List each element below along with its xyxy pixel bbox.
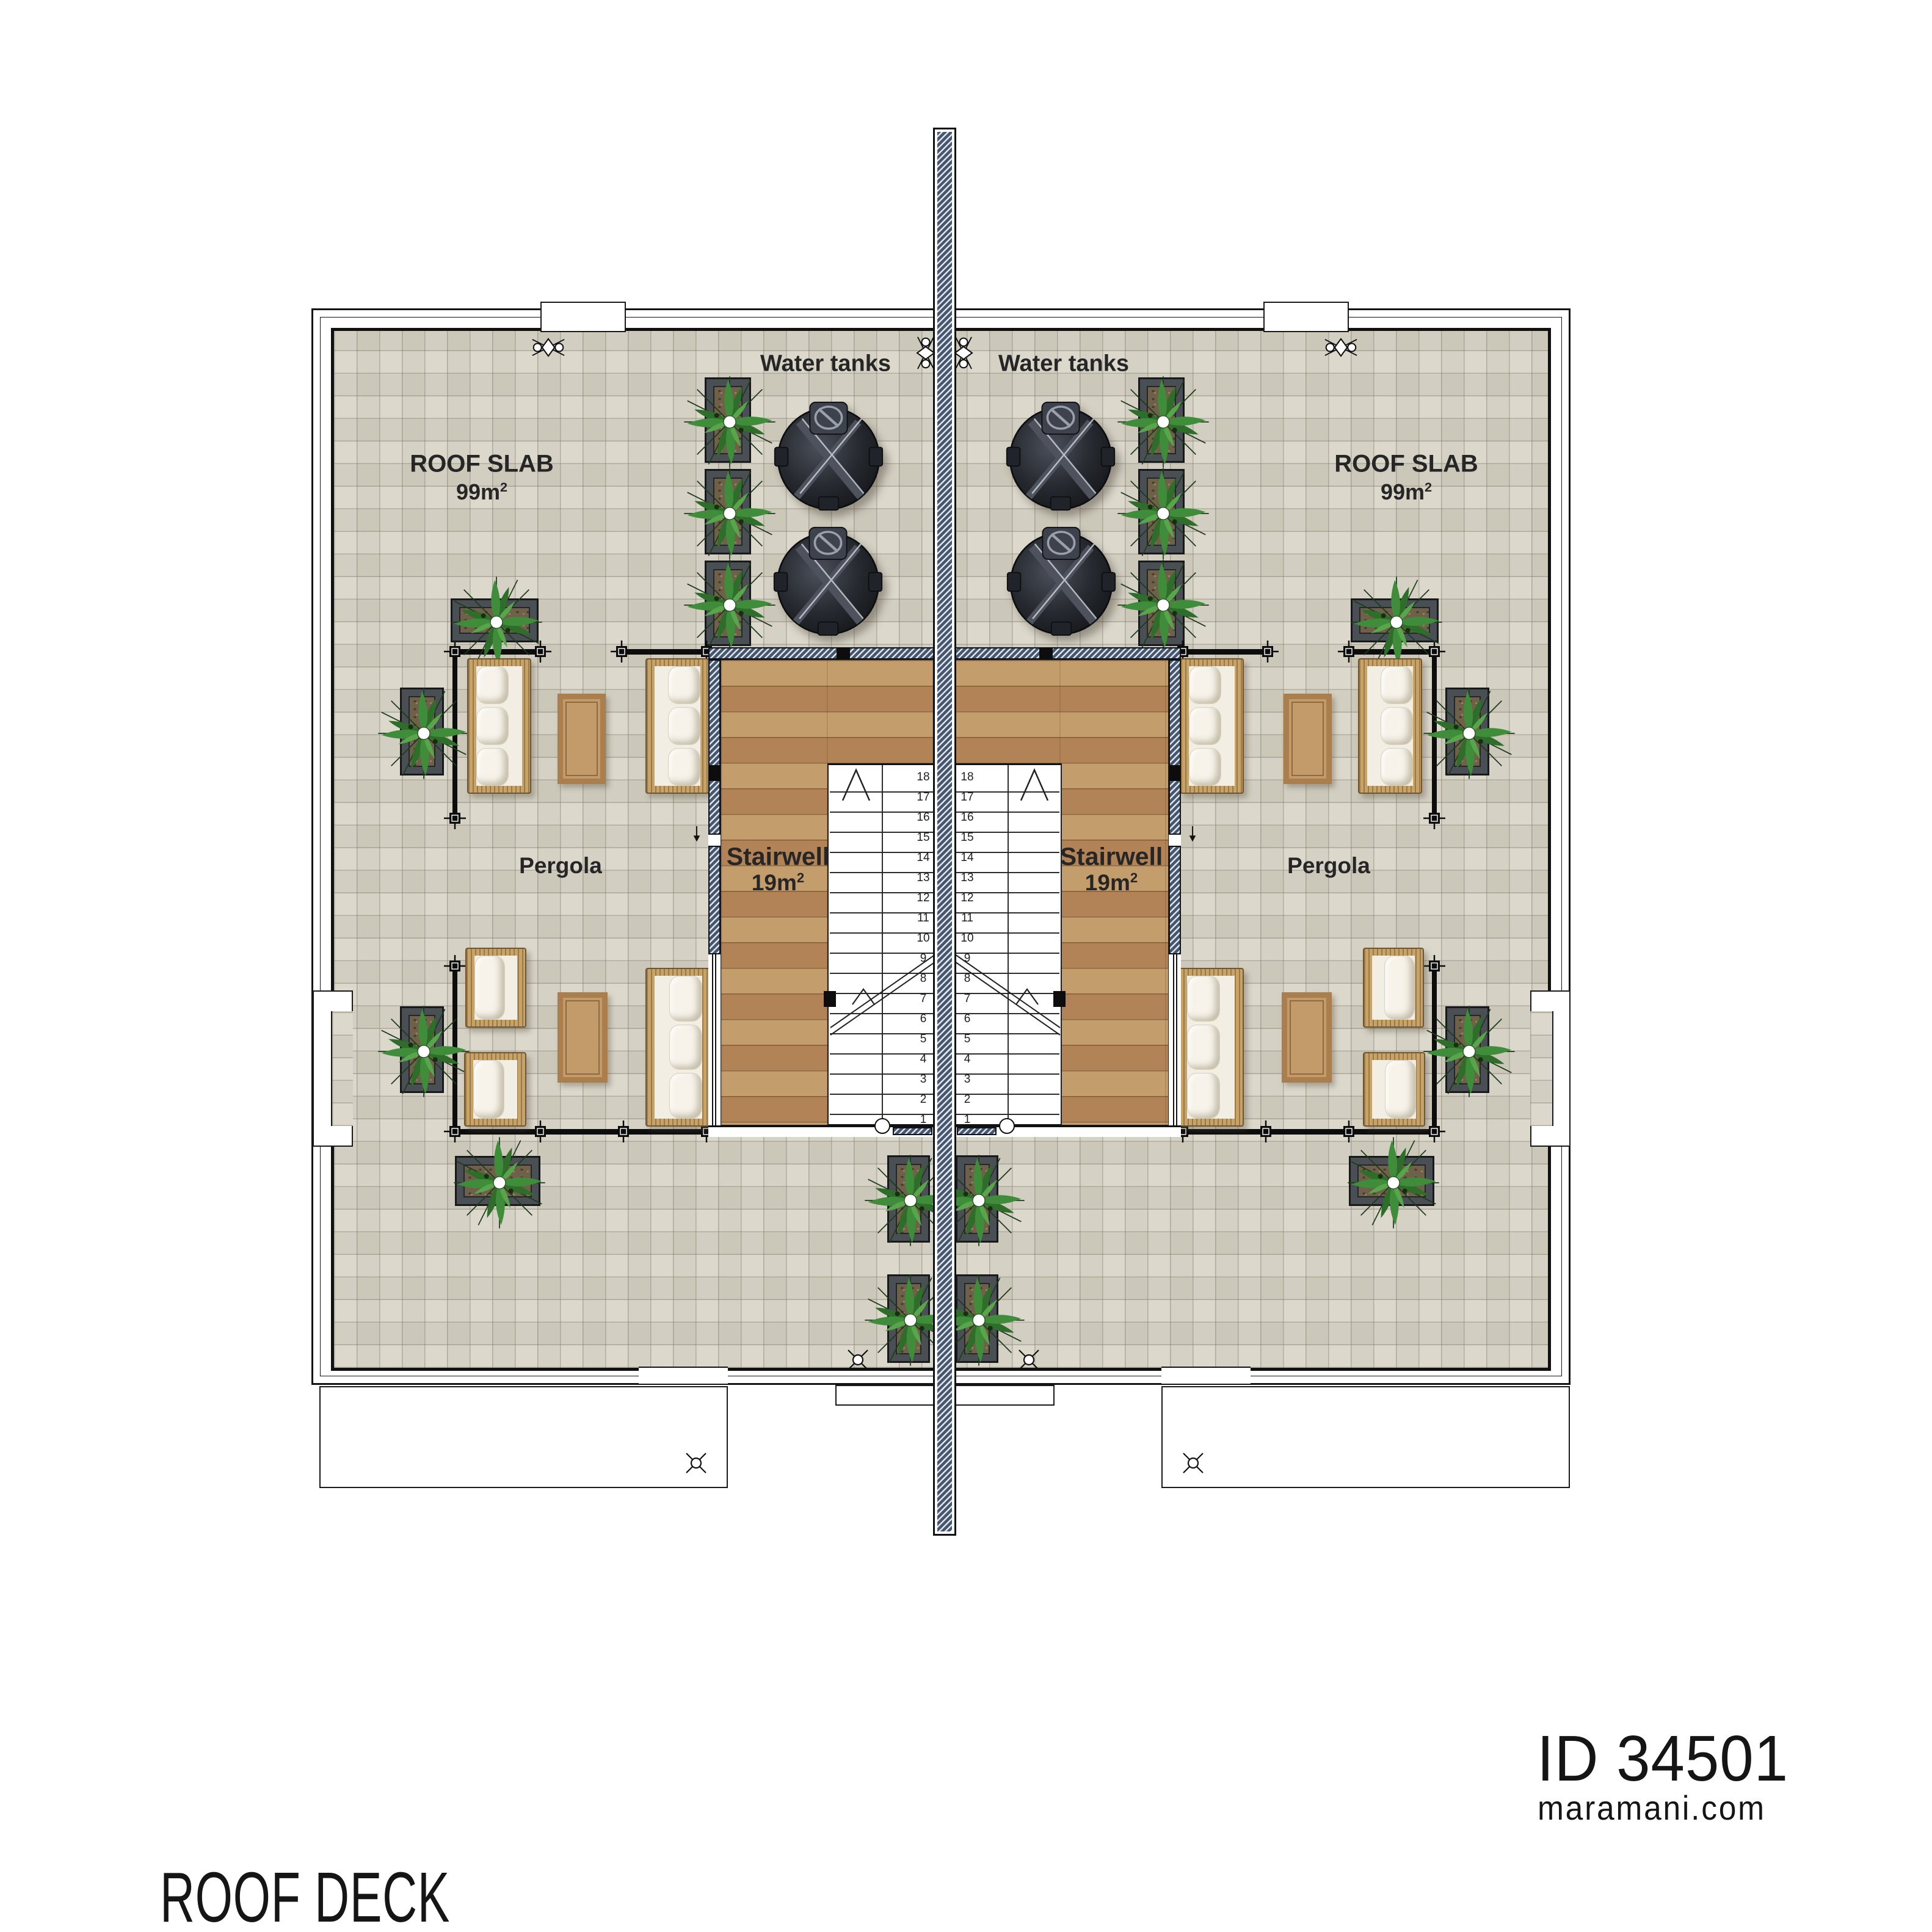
lower-roof-outline <box>319 1386 728 1488</box>
planter <box>455 1156 540 1206</box>
pergola-post-icon <box>1423 955 1445 977</box>
pergola-beam <box>452 966 457 1135</box>
pergola-post-icon <box>1338 641 1360 663</box>
wall-post <box>824 991 836 1007</box>
sofa-3seat <box>1178 968 1244 1127</box>
drain-marker-icon <box>1181 1451 1205 1475</box>
pergola-label: Pergola <box>519 853 602 879</box>
stair-run: 123456789101112131415161718 <box>827 763 936 1125</box>
door-jamb <box>708 765 721 781</box>
stair-direction-arrow-icon <box>953 765 1062 1127</box>
pergola-post-icon <box>1423 1120 1445 1142</box>
coffee-table <box>557 694 606 784</box>
pergola-post-icon <box>444 807 466 829</box>
planter <box>705 561 751 646</box>
expansion-joint-icon <box>952 336 975 370</box>
armchair <box>465 948 526 1028</box>
pergola-post-icon <box>1423 807 1445 829</box>
stairwell-wall <box>708 659 721 835</box>
pergola-post-icon <box>444 955 466 977</box>
door-jamb <box>1169 765 1181 781</box>
sofa-3seat <box>645 968 711 1127</box>
planter <box>451 598 539 642</box>
roof-deck-floor-plan: 123456789101112131415161718 123456789101… <box>0 0 1932 1932</box>
water-tanks-label: Water tanks <box>760 351 891 377</box>
water-tanks-label: Water tanks <box>998 351 1129 377</box>
stair-direction-arrow-icon <box>829 765 937 1127</box>
down-arrow-icon <box>1188 821 1197 846</box>
stair-newel-circle <box>874 1118 890 1134</box>
pergola-post-icon <box>1255 1120 1277 1142</box>
sofa-3seat <box>1180 658 1244 794</box>
planter <box>887 1274 930 1363</box>
stairwell-wall <box>957 1127 997 1135</box>
coffee-table <box>1282 992 1332 1083</box>
wall-post <box>1053 991 1066 1007</box>
pergola-beam <box>452 649 457 821</box>
stairwell-wall <box>708 846 721 954</box>
planter <box>1138 469 1185 554</box>
armchair <box>1363 948 1424 1028</box>
stairwell-wall <box>1169 659 1181 835</box>
wall-post <box>1039 647 1053 659</box>
water-tank <box>1006 401 1116 511</box>
parapet-niche-cutout <box>1530 1011 1553 1126</box>
pergola-beam <box>1432 649 1437 821</box>
down-arrow-icon <box>692 821 702 846</box>
party-wall-hatch <box>937 132 952 1531</box>
parapet-gap <box>639 1367 728 1385</box>
planter <box>887 1155 930 1243</box>
stair-run: 123456789101112131415161718 <box>953 763 1062 1125</box>
roof-slab-area-label: 99m2 <box>1381 479 1432 505</box>
planter <box>1445 1006 1489 1093</box>
pergola-beam <box>454 1129 708 1135</box>
drain-marker-icon <box>846 1348 870 1372</box>
planter <box>1138 561 1185 646</box>
sofa-3seat <box>645 658 710 794</box>
lower-roof-outline <box>1161 1386 1570 1488</box>
expansion-joint-icon <box>1324 336 1358 359</box>
wall-post <box>837 647 850 659</box>
roof-slab-label: ROOF SLAB <box>410 451 554 478</box>
stairwell-wall-thin <box>1173 954 1177 1125</box>
stair-newel-circle <box>999 1118 1015 1134</box>
planter <box>400 1006 444 1093</box>
parapet-bay <box>1263 302 1349 332</box>
expansion-joint-icon <box>531 336 565 359</box>
coffee-table <box>1284 694 1332 784</box>
water-tank <box>774 401 884 511</box>
pergola-post-icon <box>611 641 633 663</box>
coffee-table <box>557 992 608 1083</box>
sofa-3seat <box>467 658 531 794</box>
planter <box>956 1155 998 1243</box>
pergola-beam <box>1181 1129 1436 1135</box>
roof-slab-label: ROOF SLAB <box>1334 451 1478 478</box>
stairwell-label: Stairwell <box>1060 843 1163 871</box>
stairwell-label: Stairwell <box>727 843 830 871</box>
planter <box>956 1274 998 1363</box>
parapet-bay <box>540 302 626 332</box>
parapet-niche-cutout <box>331 1011 353 1126</box>
pergola-post-icon <box>444 641 466 663</box>
planter <box>705 377 751 463</box>
pergola-beam <box>1432 966 1437 1135</box>
water-tank <box>1006 526 1116 636</box>
planter <box>705 469 751 554</box>
pergola-post-icon <box>529 641 551 663</box>
pergola-beam <box>1181 649 1268 655</box>
pergola-label: Pergola <box>1287 853 1370 879</box>
roof-slab-area-label: 99m2 <box>456 479 507 505</box>
pergola-post-icon <box>1257 641 1279 663</box>
stairwell-wall <box>1169 846 1181 954</box>
website-link: maramani.com <box>1538 1788 1766 1828</box>
stairwell-wall <box>893 1127 932 1135</box>
parapet-gap <box>1161 1367 1251 1385</box>
sofa-3seat <box>1358 658 1422 794</box>
planter <box>1138 377 1185 463</box>
stairwell-area-label: 19m2 <box>752 870 804 896</box>
stairwell-wall-thin <box>712 954 716 1125</box>
plan-id: ID 34501 <box>1537 1722 1789 1796</box>
planter <box>1349 1156 1434 1206</box>
floor-name-title: ROOF DECK <box>160 1856 450 1932</box>
armchair <box>1363 1052 1425 1127</box>
pergola-post-icon <box>1423 641 1445 663</box>
drain-marker-icon <box>1017 1348 1041 1372</box>
pergola-post-icon <box>529 1120 551 1142</box>
pergola-beam <box>454 649 540 655</box>
planter <box>400 688 444 775</box>
drain-marker-icon <box>684 1451 708 1475</box>
pergola-post-icon <box>612 1120 634 1142</box>
water-tank <box>773 526 883 636</box>
stairwell-area-label: 19m2 <box>1085 870 1138 896</box>
pergola-post-icon <box>444 1120 466 1142</box>
pergola-beam <box>1349 649 1436 655</box>
pergola-post-icon <box>1338 1120 1360 1142</box>
planter <box>1351 598 1439 642</box>
expansion-joint-icon <box>914 336 937 370</box>
armchair <box>464 1052 526 1127</box>
planter <box>1445 688 1489 775</box>
